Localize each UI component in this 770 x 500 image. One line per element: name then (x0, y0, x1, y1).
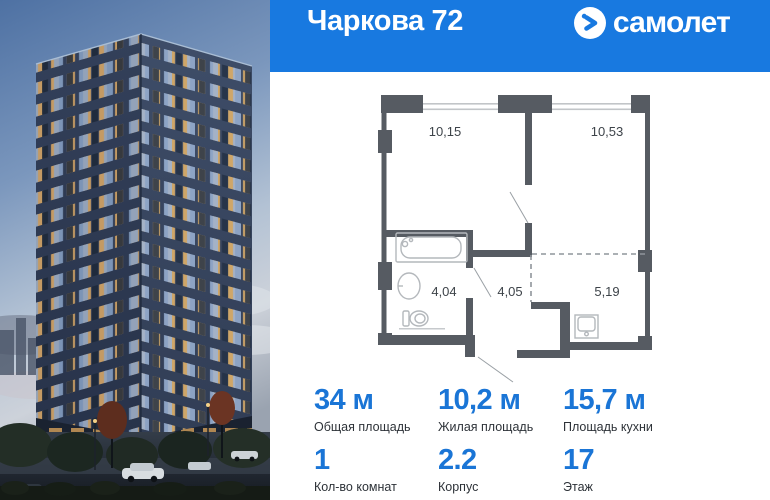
stat-kitchen-area: 15,7 м Площадь кухни (563, 386, 688, 434)
stat-living-area: 10,2 м Жилая площадь (438, 386, 563, 434)
bathtub-icon (396, 233, 467, 262)
stat-floor: 17 Этаж (563, 446, 688, 494)
stat-value: 15,7 м (563, 386, 688, 414)
building-scene (0, 0, 270, 500)
listing-card: Чаркова 72 самолет (270, 0, 770, 500)
red-tree (97, 401, 127, 439)
stat-label: Площадь кухни (563, 420, 688, 434)
entry-door-swing (478, 357, 513, 382)
floor-plan: 10,15 10,53 4,04 4,05 5,19 (378, 88, 654, 388)
project-title: Чаркова 72 (307, 5, 463, 38)
kitchen-sink-icon (575, 315, 598, 338)
stat-value: 10,2 м (438, 386, 563, 414)
stat-building: 2.2 Корпус (438, 446, 563, 494)
kitchen-zone-dashed (531, 254, 645, 302)
washbasin-icon (398, 273, 420, 299)
stat-room-count: 1 Кол-во комнат (314, 446, 439, 494)
room-area-label: 10,15 (429, 124, 462, 139)
brand-name: самолет (613, 7, 730, 39)
samolet-logo-icon (574, 7, 606, 39)
bathroom-door-swing (474, 268, 491, 297)
building-photo (0, 0, 270, 500)
stat-label: Корпус (438, 480, 563, 494)
header-bar: Чаркова 72 самолет (270, 0, 770, 72)
stat-value: 17 (563, 446, 688, 474)
room-area-label: 4,04 (431, 284, 456, 299)
stat-label: Этаж (563, 480, 688, 494)
stat-value: 2.2 (438, 446, 563, 474)
toilet-icon (403, 311, 428, 326)
stat-value: 1 (314, 446, 439, 474)
stat-total-area: 34 м Общая площадь (314, 386, 439, 434)
room-door-swing (510, 192, 528, 223)
brand-logo: самолет (574, 7, 730, 39)
room-area-label: 10,53 (591, 124, 624, 139)
room-area-label: 4,05 (497, 284, 522, 299)
stat-label: Жилая площадь (438, 420, 563, 434)
bathroom-screen-line (399, 328, 445, 330)
stat-label: Общая площадь (314, 420, 439, 434)
red-tree (209, 391, 235, 425)
stat-label: Кол-во комнат (314, 480, 439, 494)
van-white (188, 462, 211, 470)
room-area-label: 5,19 (594, 284, 619, 299)
stat-value: 34 м (314, 386, 439, 414)
